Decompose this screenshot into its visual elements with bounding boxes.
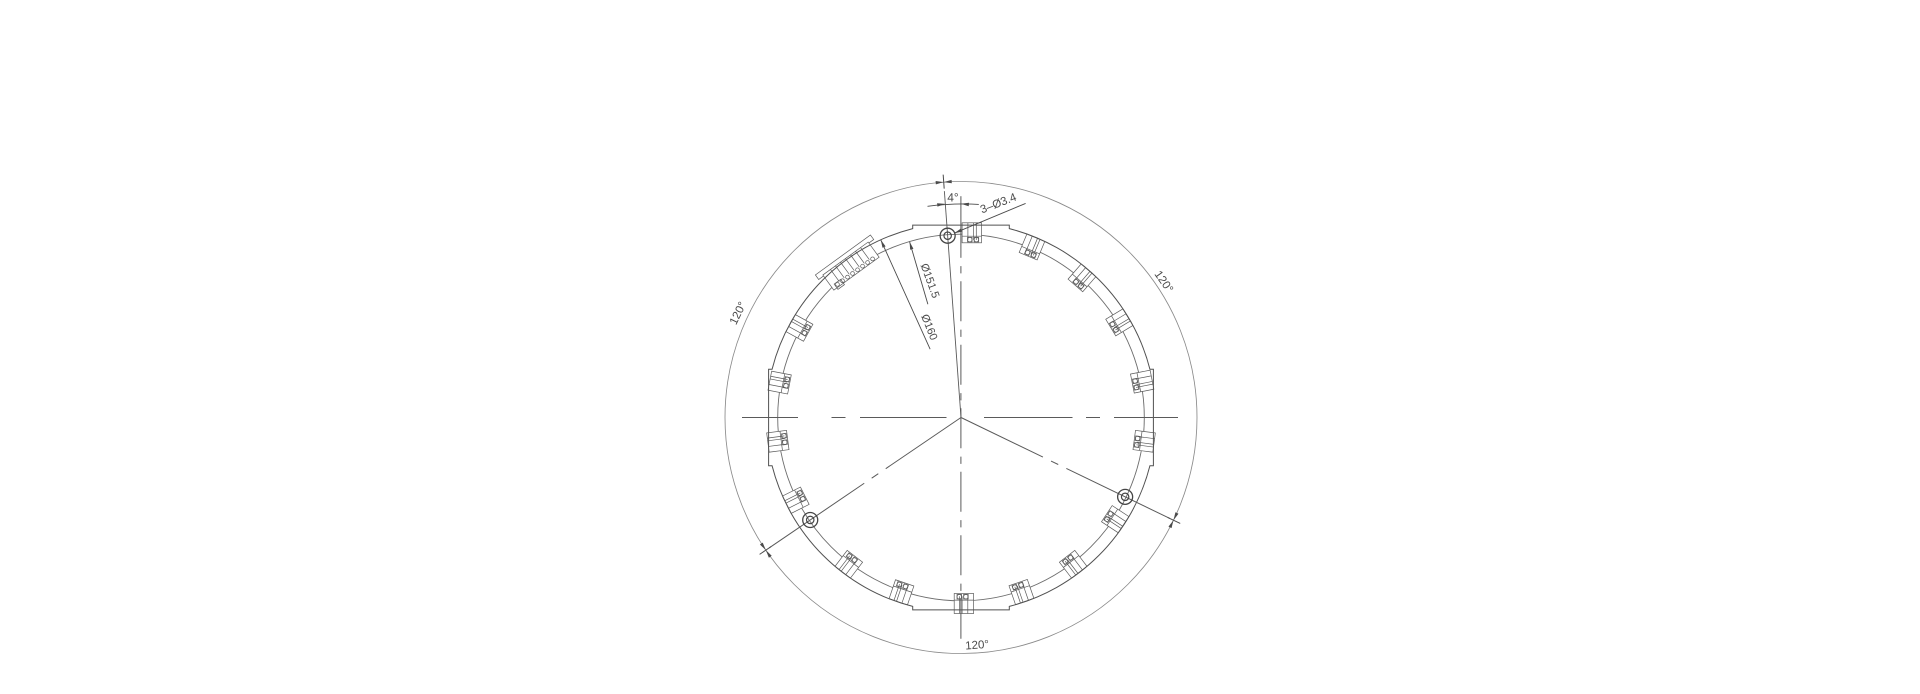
svg-text:120°: 120°	[965, 639, 990, 653]
svg-text:4°: 4°	[947, 191, 959, 205]
